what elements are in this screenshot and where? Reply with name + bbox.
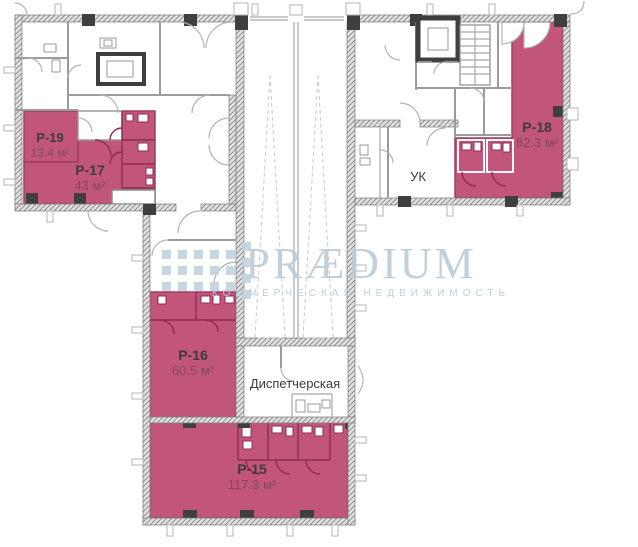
floorplan-svg: PRÆDIUM КОММЕРЧЕСКАЯ НЕДВИЖИМОСТЬ P-19 1…: [0, 0, 638, 547]
room-p17-name: P-17: [75, 162, 105, 178]
room-dispatcher-name: Диспетчерская: [250, 376, 340, 391]
room-p16-name: P-16: [178, 347, 208, 363]
watermark-brand: PRÆDIUM: [245, 239, 476, 288]
room-p17-area: 43 м²: [74, 178, 106, 193]
room-p15-area: 117.3 м²: [228, 477, 277, 492]
room-p18-name: P-18: [522, 119, 552, 135]
room-p16-area: 60.5 м²: [172, 363, 215, 378]
floorplan-canvas: PRÆDIUM КОММЕРЧЕСКАЯ НЕДВИЖИМОСТЬ P-19 1…: [0, 0, 638, 547]
elevator-shaft: [418, 18, 458, 60]
room-p15-name: P-15: [237, 461, 267, 477]
room-p18-area: 82.3 м²: [516, 135, 559, 150]
room-p19-area: 13.4 м²: [31, 146, 70, 160]
staircase: [460, 25, 490, 85]
watermark-tagline: КОММЕРЧЕСКАЯ НЕДВИЖИМОСТЬ: [212, 288, 510, 299]
technical-room: [98, 54, 144, 84]
room-p19-name: P-19: [36, 130, 63, 145]
room-uk-name: УК: [410, 169, 426, 184]
